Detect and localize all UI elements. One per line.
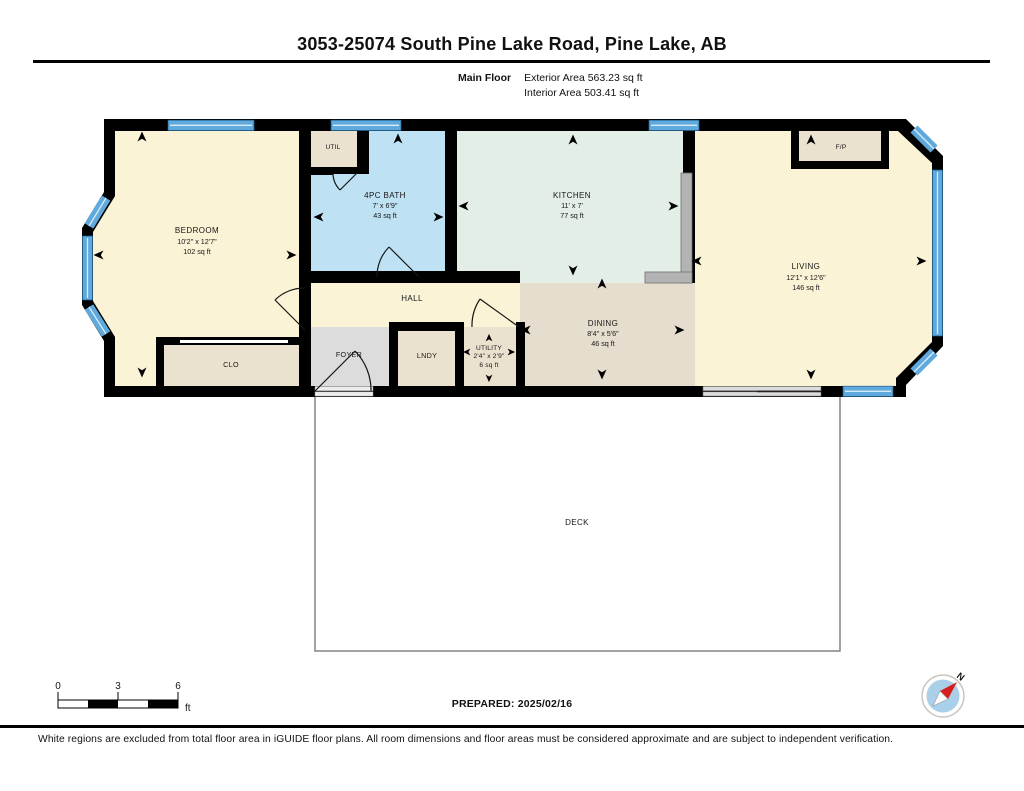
svg-text:8'4" x 5'6": 8'4" x 5'6" (587, 329, 619, 338)
svg-text:7' x 6'9": 7' x 6'9" (373, 201, 398, 210)
label-hall: HALL (401, 294, 423, 303)
svg-text:2'4" x 2'9": 2'4" x 2'9" (473, 353, 504, 360)
scale-tick-0: 0 (55, 681, 61, 692)
label-lndy: LNDY (417, 351, 437, 360)
label-clo: CLO (223, 360, 239, 369)
svg-text:12'1" x 12'6": 12'1" x 12'6" (786, 273, 826, 282)
svg-text:UTILITY: UTILITY (476, 345, 502, 352)
label-dining: DINING 8'4" x 5'6" 46 sq ft (587, 319, 619, 348)
disclaimer-text: White regions are excluded from total fl… (38, 734, 893, 745)
svg-text:102 sq ft: 102 sq ft (183, 247, 211, 256)
svg-text:43 sq ft: 43 sq ft (373, 211, 397, 220)
svg-text:11' x 7': 11' x 7' (561, 201, 583, 210)
label-deck: DECK (565, 518, 589, 527)
floorplan-page: 3053-25074 South Pine Lake Road, Pine La… (0, 0, 1024, 791)
label-fireplace: F/P (836, 144, 847, 151)
svg-text:LIVING: LIVING (792, 262, 821, 271)
floorplan-drawing: BEDROOM 10'2" x 12'7" 102 sq ft 4PC BATH… (0, 0, 1024, 791)
svg-text:DINING: DINING (588, 319, 618, 328)
scale-tick-6: 6 (175, 681, 181, 692)
svg-text:146 sq ft: 146 sq ft (792, 283, 820, 292)
prepared-date: PREPARED: 2025/02/16 (0, 698, 1024, 710)
svg-text:6 sq ft: 6 sq ft (479, 362, 498, 369)
label-util: UTIL (325, 144, 340, 151)
footer-divider (0, 725, 1024, 728)
svg-text:46 sq ft: 46 sq ft (591, 339, 615, 348)
rooms (93, 131, 932, 386)
svg-text:10'2" x 12'7": 10'2" x 12'7" (177, 237, 217, 246)
svg-text:KITCHEN: KITCHEN (553, 191, 591, 200)
scale-tick-3: 3 (115, 681, 121, 692)
compass: N (922, 671, 966, 717)
room-living (695, 131, 932, 386)
closet-rod-detail (180, 340, 288, 343)
label-foyer: FOYER (336, 350, 362, 359)
svg-text:BEDROOM: BEDROOM (175, 226, 219, 235)
svg-text:4PC BATH: 4PC BATH (364, 191, 406, 200)
svg-text:77 sq ft: 77 sq ft (560, 211, 584, 220)
